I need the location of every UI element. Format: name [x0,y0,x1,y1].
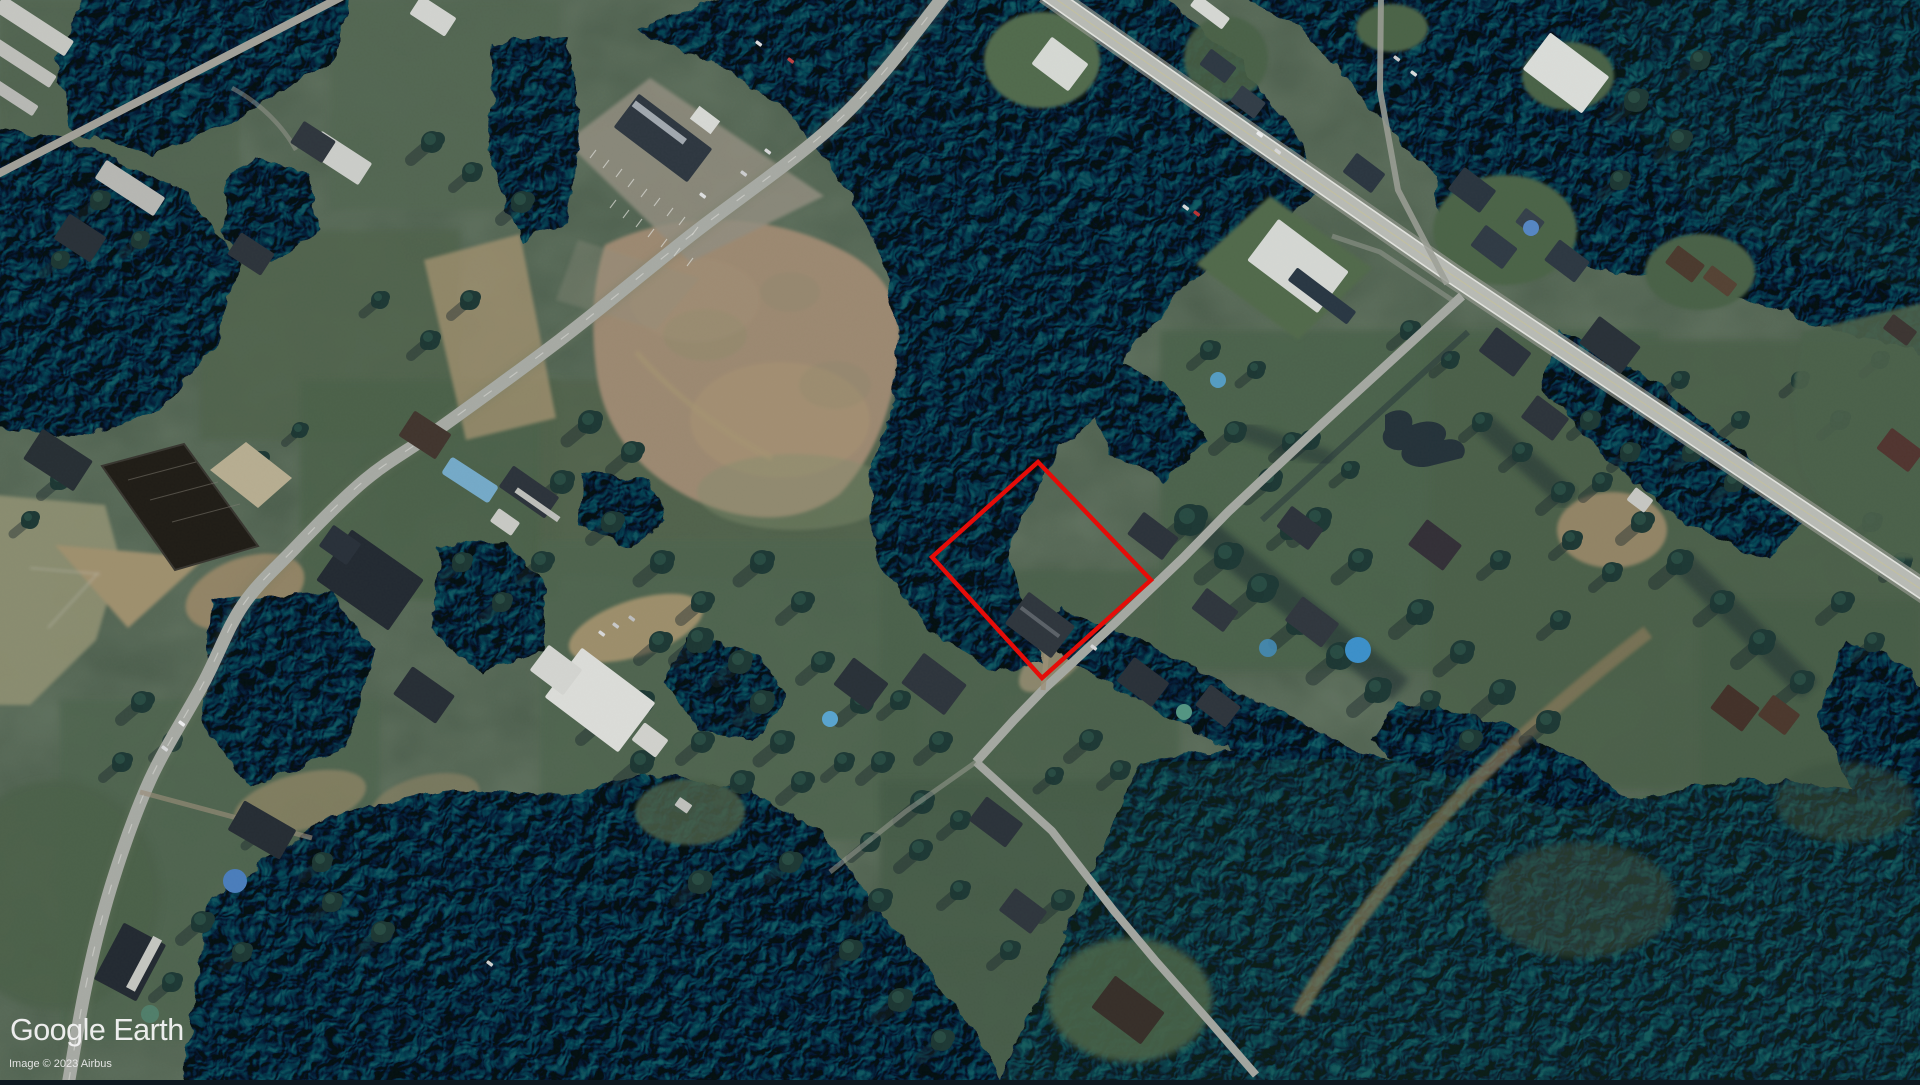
svg-text:Google Earth: Google Earth [10,1013,184,1047]
svg-text:Image © 2023 Airbus: Image © 2023 Airbus [9,1058,112,1070]
